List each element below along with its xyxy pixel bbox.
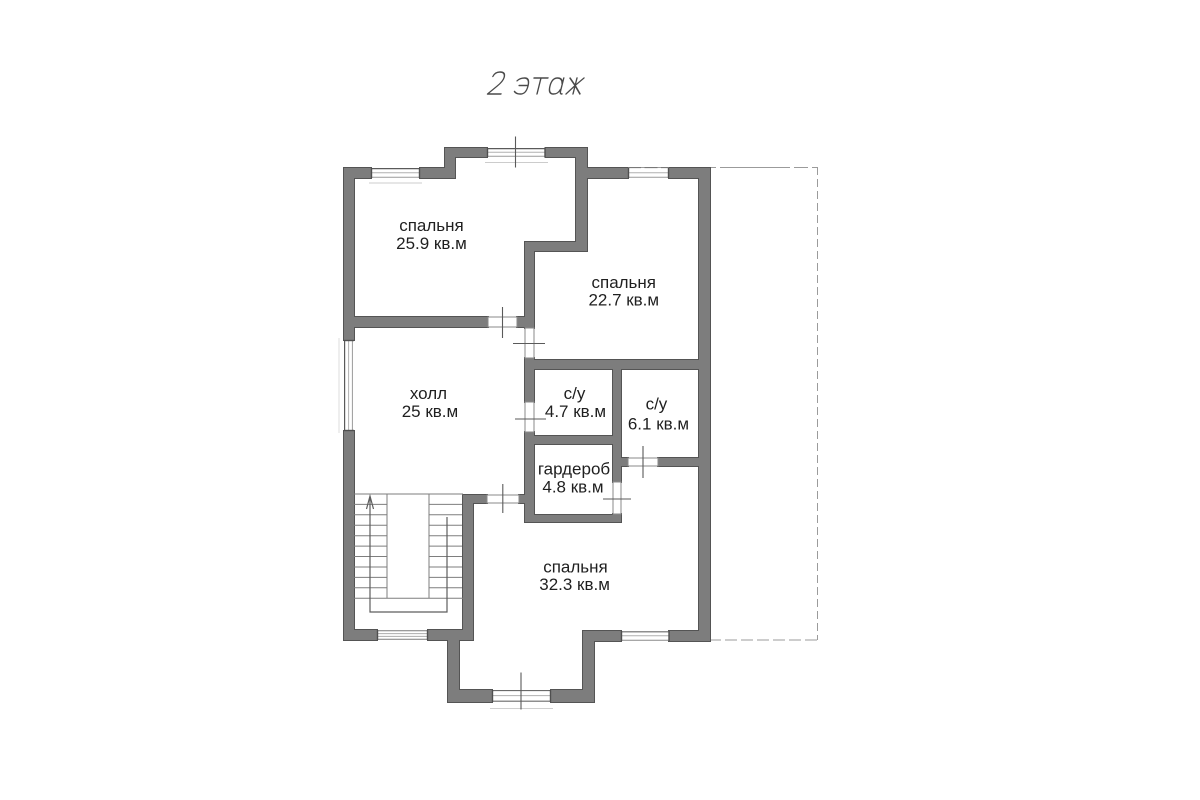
svg-text:холл: холл — [410, 384, 447, 403]
svg-text:гардероб: гардероб — [538, 459, 611, 478]
svg-text:25 кв.м: 25 кв.м — [402, 402, 458, 421]
svg-text:спальня: спальня — [543, 557, 607, 576]
svg-text:с/у: с/у — [564, 384, 586, 403]
svg-text:22.7 кв.м: 22.7 кв.м — [588, 291, 659, 310]
svg-text:спальня: спальня — [592, 273, 656, 292]
svg-text:4.7 кв.м: 4.7 кв.м — [545, 402, 606, 421]
svg-text:32.3 кв.м: 32.3 кв.м — [539, 575, 610, 594]
svg-text:спальня: спальня — [399, 216, 463, 235]
svg-text:4.8 кв.м: 4.8 кв.м — [542, 477, 603, 496]
svg-text:25.9 кв.м: 25.9 кв.м — [396, 234, 467, 253]
svg-text:с/у: с/у — [646, 394, 668, 413]
svg-text:6.1 кв.м: 6.1 кв.м — [628, 414, 689, 433]
